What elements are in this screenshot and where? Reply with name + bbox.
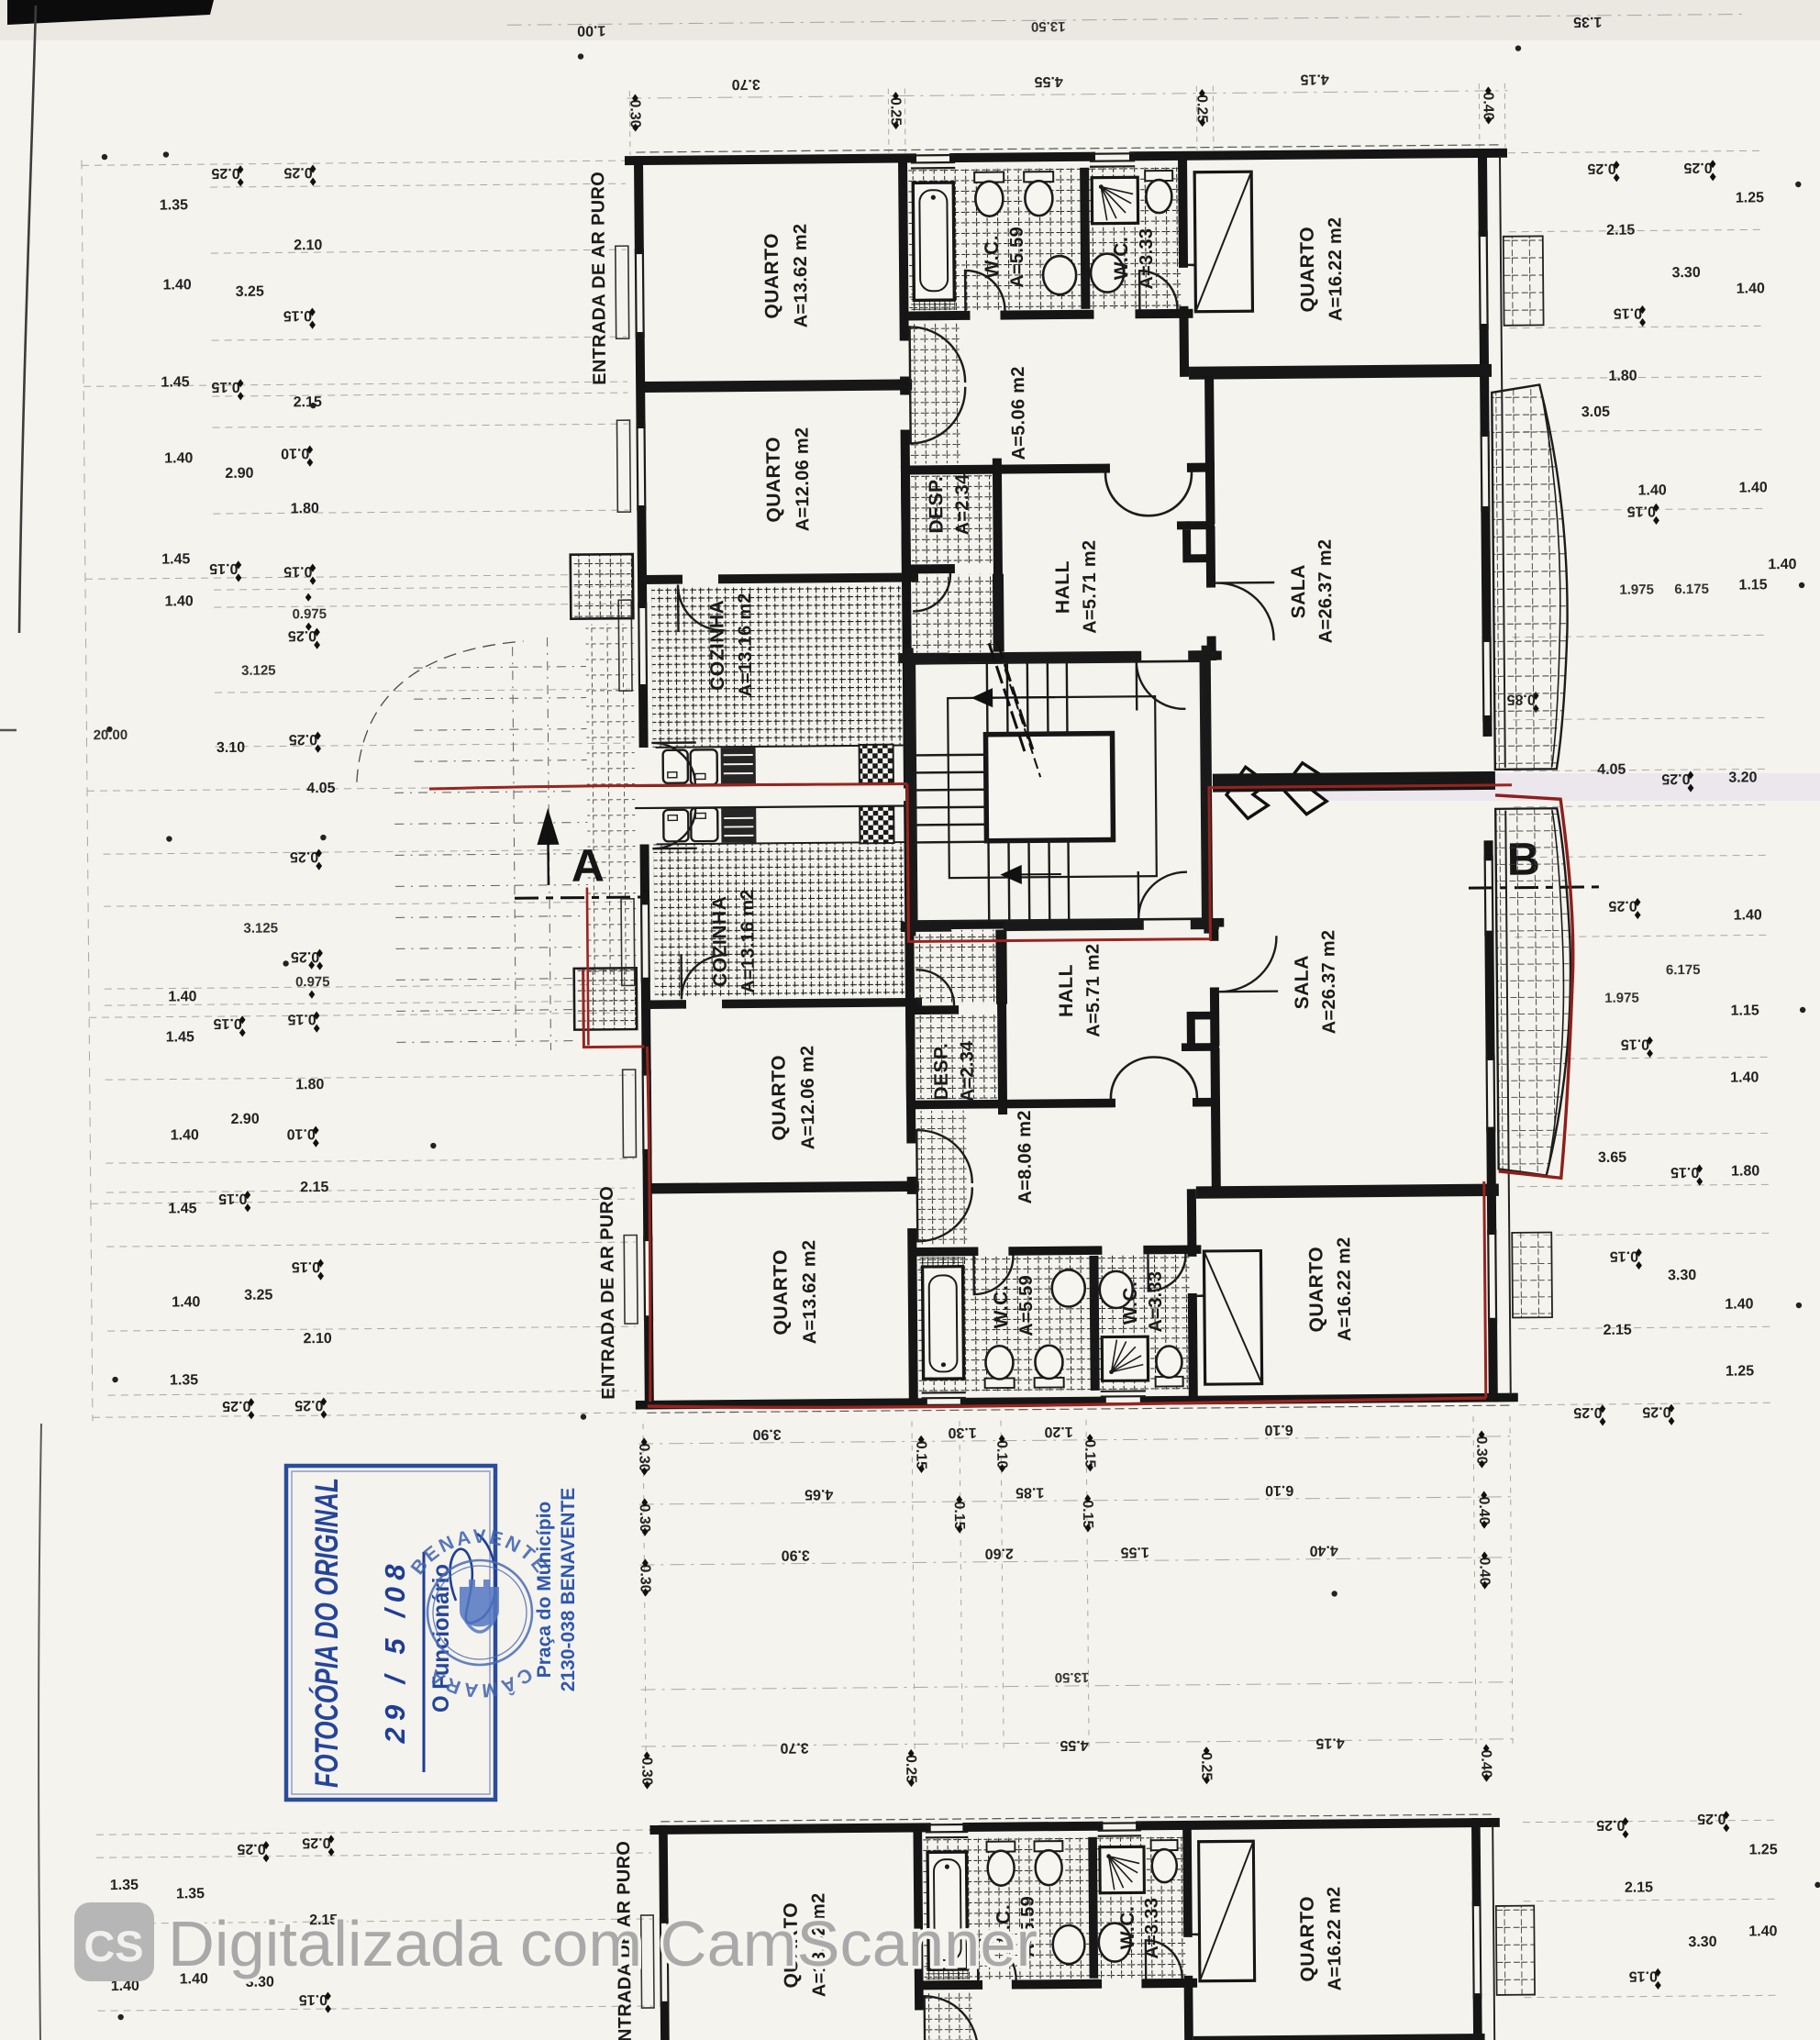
svg-text:A=5.06 m2: A=5.06 m2 [1008, 366, 1029, 460]
svg-text:0.25: 0.25 [289, 731, 317, 747]
svg-text:1.35: 1.35 [170, 1372, 198, 1388]
svg-text:W.C.: W.C. [1117, 1906, 1138, 1950]
svg-text:6.10: 6.10 [1265, 1482, 1293, 1498]
svg-text:6.10: 6.10 [1264, 1422, 1293, 1437]
svg-text:0.40: 0.40 [1478, 1749, 1493, 1778]
svg-text:0.15: 0.15 [299, 1991, 327, 2007]
svg-text:0.25: 0.25 [1596, 1817, 1625, 1833]
svg-text:3.30: 3.30 [1671, 265, 1700, 281]
svg-text:2.10: 2.10 [304, 1331, 332, 1347]
svg-text:1.45: 1.45 [161, 551, 190, 567]
svg-text:3.65: 3.65 [1598, 1150, 1626, 1166]
svg-text:0.25: 0.25 [1697, 1811, 1726, 1826]
svg-text:0.15: 0.15 [1670, 1164, 1699, 1180]
svg-text:4.05: 4.05 [1597, 762, 1626, 778]
svg-text:2.90: 2.90 [225, 466, 253, 482]
svg-text:2.15: 2.15 [1625, 1879, 1653, 1895]
svg-text:1.40: 1.40 [1739, 480, 1768, 495]
svg-text:0.25: 0.25 [1642, 1403, 1670, 1419]
svg-text:0.30: 0.30 [636, 1443, 651, 1471]
svg-text:HALL: HALL [1052, 560, 1074, 614]
svg-text:0.25: 0.25 [237, 1841, 265, 1857]
svg-text:A: A [571, 839, 605, 891]
svg-text:0.975: 0.975 [295, 974, 330, 990]
svg-text:0.25: 0.25 [222, 1398, 250, 1414]
svg-text:0.15: 0.15 [287, 1011, 316, 1026]
svg-text:0.40: 0.40 [1476, 1557, 1492, 1585]
svg-text:0.15: 0.15 [292, 1258, 320, 1274]
svg-text:A=3.33: A=3.33 [1137, 228, 1158, 290]
svg-text:CS: CS [83, 1922, 143, 1970]
svg-text:1.40: 1.40 [1737, 281, 1765, 296]
svg-text:2.90: 2.90 [230, 1112, 259, 1127]
svg-text:0.25: 0.25 [1193, 94, 1209, 123]
svg-text:6.175: 6.175 [1666, 962, 1701, 978]
svg-text:A=5.71 m2: A=5.71 m2 [1082, 944, 1104, 1037]
svg-text:0.15: 0.15 [209, 560, 238, 576]
svg-text:4.05: 4.05 [306, 781, 335, 796]
svg-text:1.40: 1.40 [164, 450, 193, 466]
svg-text:0.25: 0.25 [1683, 160, 1712, 175]
svg-text:0.15: 0.15 [283, 563, 312, 579]
svg-text:QUARTO: QUARTO [1305, 1247, 1327, 1333]
svg-text:1.40: 1.40 [1730, 1070, 1759, 1085]
svg-text:0.15: 0.15 [951, 1501, 967, 1529]
svg-text:ENTRADA DE AR PURO: ENTRADA DE AR PURO [597, 1186, 619, 1400]
svg-text:0.30: 0.30 [1473, 1436, 1489, 1464]
svg-text:0.15: 0.15 [1082, 1439, 1097, 1468]
svg-text:2.15: 2.15 [1604, 1323, 1632, 1338]
svg-text:0.15: 0.15 [1621, 1036, 1649, 1051]
svg-text:0.15: 0.15 [283, 307, 312, 323]
svg-text:13.50: 13.50 [1055, 1669, 1090, 1685]
svg-text:3.125: 3.125 [243, 920, 278, 936]
svg-text:1.35: 1.35 [160, 197, 188, 213]
svg-text:ENTRADA DE AR PURO: ENTRADA DE AR PURO [588, 172, 610, 385]
svg-text:4.55: 4.55 [1060, 1737, 1088, 1753]
svg-text:0.25: 0.25 [288, 627, 316, 643]
svg-text:W.C.: W.C. [1111, 237, 1132, 281]
svg-text:COZINHA: COZINHA [709, 896, 731, 987]
svg-text:0.40: 0.40 [1480, 92, 1495, 120]
svg-text:0.25: 0.25 [1661, 771, 1690, 786]
svg-text:QUARTO: QUARTO [1297, 227, 1319, 313]
svg-text:FOTOCÓPIA DO ORIGINAL: FOTOCÓPIA DO ORIGINAL [308, 1478, 345, 1788]
svg-text:W.C.: W.C. [991, 1285, 1012, 1329]
svg-text:0.25: 0.25 [211, 165, 239, 181]
svg-text:3.30: 3.30 [1688, 1935, 1716, 1950]
svg-text:0.15: 0.15 [211, 379, 239, 394]
svg-text:1.975: 1.975 [1604, 991, 1639, 1006]
svg-text:0.25: 0.25 [291, 948, 319, 964]
svg-text:DESP.: DESP. [926, 476, 948, 534]
svg-text:1.30: 1.30 [948, 1425, 976, 1440]
svg-text:SALA: SALA [1292, 955, 1314, 1009]
svg-text:0.30: 0.30 [638, 1757, 654, 1785]
svg-text:1.40: 1.40 [1748, 1924, 1777, 1939]
svg-text:0.25: 0.25 [1587, 161, 1615, 176]
svg-text:0.15: 0.15 [1629, 1968, 1658, 1983]
svg-text:1.40: 1.40 [168, 989, 196, 1004]
svg-text:1.45: 1.45 [166, 1029, 194, 1045]
svg-text:HALL: HALL [1056, 964, 1078, 1017]
svg-text:A=13.16 m2: A=13.16 m2 [735, 593, 756, 697]
svg-text:6.175: 6.175 [1674, 582, 1709, 597]
svg-text:A=12.06 m2: A=12.06 m2 [793, 427, 814, 532]
svg-text:1.80: 1.80 [291, 501, 319, 516]
svg-text:A=8.06 m2: A=8.06 m2 [1015, 1110, 1036, 1203]
svg-text:W.C.: W.C. [1120, 1281, 1141, 1325]
svg-text:4.15: 4.15 [1315, 1735, 1344, 1750]
svg-text:13.50: 13.50 [1031, 18, 1066, 34]
svg-text:1.40: 1.40 [165, 593, 194, 609]
svg-text:A=3.33: A=3.33 [1146, 1271, 1167, 1333]
svg-text:1.40: 1.40 [1638, 482, 1667, 498]
svg-text:1.25: 1.25 [1726, 1363, 1754, 1379]
svg-text:1.15: 1.15 [1730, 1003, 1759, 1018]
svg-text:A=13.62 m2: A=13.62 m2 [791, 224, 812, 328]
svg-text:2130-038 BENAVENTE: 2130-038 BENAVENTE [558, 1488, 579, 1692]
svg-text:1.40: 1.40 [1725, 1296, 1753, 1312]
svg-text:A=16.22 m2: A=16.22 m2 [1326, 216, 1347, 321]
svg-text:1.80: 1.80 [1608, 369, 1637, 384]
svg-text:1.80: 1.80 [295, 1077, 324, 1092]
svg-text:0.25: 0.25 [283, 164, 312, 180]
svg-text:QUARTO: QUARTO [1297, 1896, 1319, 1982]
svg-text:4.15: 4.15 [1301, 71, 1329, 86]
svg-text:1.40: 1.40 [1768, 557, 1796, 572]
svg-text:3.05: 3.05 [1581, 405, 1610, 420]
svg-text:QUARTO: QUARTO [769, 1055, 791, 1141]
svg-text:2.15: 2.15 [294, 394, 322, 410]
svg-text:0.15: 0.15 [218, 1191, 247, 1206]
svg-text:A=13.62 m2: A=13.62 m2 [799, 1240, 820, 1345]
svg-text:3.25: 3.25 [236, 284, 264, 300]
svg-text:2.15: 2.15 [1606, 223, 1635, 238]
svg-text:A=13.16 m2: A=13.16 m2 [738, 889, 759, 993]
svg-text:4.55: 4.55 [1035, 73, 1063, 89]
svg-text:1.45: 1.45 [161, 374, 189, 390]
svg-text:A=16.22 m2: A=16.22 m2 [1334, 1236, 1355, 1341]
svg-text:QUARTO: QUARTO [763, 437, 785, 523]
svg-text:SALA: SALA [1288, 564, 1310, 618]
svg-text:DESP.: DESP. [930, 1043, 952, 1101]
svg-text:A=26.37 m2: A=26.37 m2 [1318, 930, 1339, 1035]
svg-text:QUARTO: QUARTO [770, 1249, 792, 1336]
svg-text:0.40: 0.40 [1476, 1496, 1492, 1524]
svg-text:29 / 5 /08: 29 / 5 /08 [379, 1564, 411, 1745]
svg-text:4.40: 4.40 [1310, 1542, 1338, 1558]
svg-text:1.975: 1.975 [1619, 582, 1654, 597]
svg-text:W.C.: W.C. [982, 235, 1003, 279]
svg-text:A=16.22 m2: A=16.22 m2 [1324, 1887, 1345, 1991]
svg-text:1.45: 1.45 [168, 1201, 196, 1216]
svg-text:1.40: 1.40 [1734, 907, 1762, 923]
svg-text:0.15: 0.15 [213, 1015, 241, 1031]
svg-text:1.40: 1.40 [172, 1294, 200, 1310]
svg-text:3.90: 3.90 [752, 1426, 781, 1442]
svg-text:A=26.37 m2: A=26.37 m2 [1315, 539, 1337, 644]
svg-text:3.70: 3.70 [732, 76, 760, 92]
svg-text:0.30: 0.30 [637, 1503, 652, 1532]
svg-text:0.15: 0.15 [1614, 305, 1642, 320]
svg-text:0.25: 0.25 [903, 1755, 918, 1783]
svg-text:1.35: 1.35 [1573, 14, 1602, 29]
svg-text:Praça do Município: Praça do Município [534, 1502, 555, 1679]
svg-text:1.80: 1.80 [1731, 1163, 1759, 1179]
svg-text:3.70: 3.70 [780, 1739, 808, 1755]
svg-text:1.40: 1.40 [163, 277, 192, 293]
svg-text:1.40: 1.40 [171, 1127, 199, 1143]
svg-text:3.30: 3.30 [1668, 1268, 1696, 1283]
svg-text:0.25: 0.25 [1608, 898, 1637, 914]
svg-text:2.60: 2.60 [985, 1546, 1014, 1561]
svg-text:A=5.59: A=5.59 [1016, 1275, 1038, 1336]
svg-text:0.10: 0.10 [281, 445, 309, 460]
svg-text:3.25: 3.25 [244, 1288, 272, 1303]
svg-text:3.10: 3.10 [216, 740, 245, 756]
svg-text:0.30: 0.30 [637, 1564, 652, 1592]
svg-text:0.15: 0.15 [1080, 1500, 1095, 1528]
svg-text:3.125: 3.125 [241, 662, 276, 678]
svg-text:0.10: 0.10 [287, 1125, 316, 1141]
svg-text:1.15: 1.15 [1738, 577, 1767, 593]
svg-text:0.975: 0.975 [292, 606, 327, 622]
svg-text:0.25: 0.25 [887, 97, 903, 126]
svg-text:A=3.33: A=3.33 [1142, 1898, 1163, 1959]
svg-text:0.25: 0.25 [1198, 1752, 1214, 1780]
svg-text:0.30: 0.30 [627, 99, 642, 127]
svg-text:0.25: 0.25 [294, 1397, 323, 1413]
svg-text:1.85: 1.85 [1015, 1484, 1044, 1500]
svg-text:1.25: 1.25 [1748, 1842, 1777, 1857]
svg-text:1.20: 1.20 [1044, 1424, 1072, 1439]
svg-text:A=2.34: A=2.34 [957, 1040, 978, 1103]
svg-text:3.90: 3.90 [782, 1547, 810, 1562]
svg-text:A=12.06 m2: A=12.06 m2 [797, 1046, 818, 1150]
svg-text:COZINHA: COZINHA [706, 600, 728, 691]
svg-text:A=5.59: A=5.59 [1007, 227, 1028, 288]
svg-text:1.35: 1.35 [110, 1878, 139, 1893]
svg-text:1.00: 1.00 [577, 22, 605, 38]
svg-text:A=2.34: A=2.34 [952, 473, 973, 536]
svg-text:4.65: 4.65 [805, 1486, 833, 1502]
svg-text:QUARTO: QUARTO [761, 233, 783, 319]
svg-text:A=5.71 m2: A=5.71 m2 [1080, 540, 1101, 634]
svg-text:2.10: 2.10 [294, 238, 322, 253]
svg-text:1.25: 1.25 [1736, 190, 1764, 205]
svg-text:2.15: 2.15 [300, 1180, 328, 1195]
svg-text:0.25: 0.25 [1573, 1404, 1602, 1420]
svg-text:0.10: 0.10 [993, 1440, 1009, 1469]
svg-text:3.20: 3.20 [1728, 770, 1757, 785]
svg-text:1.35: 1.35 [176, 1886, 205, 1901]
svg-text:0.15: 0.15 [913, 1441, 928, 1469]
svg-text:1.55: 1.55 [1121, 1544, 1149, 1559]
svg-text:0.25: 0.25 [302, 1835, 330, 1850]
svg-text:0.25: 0.25 [290, 848, 318, 864]
svg-text:0.15: 0.15 [1627, 503, 1656, 518]
svg-text:Digitalizada com CamScanner: Digitalizada com CamScanner [168, 1908, 1038, 1979]
svg-text:0.15: 0.15 [1610, 1248, 1638, 1264]
